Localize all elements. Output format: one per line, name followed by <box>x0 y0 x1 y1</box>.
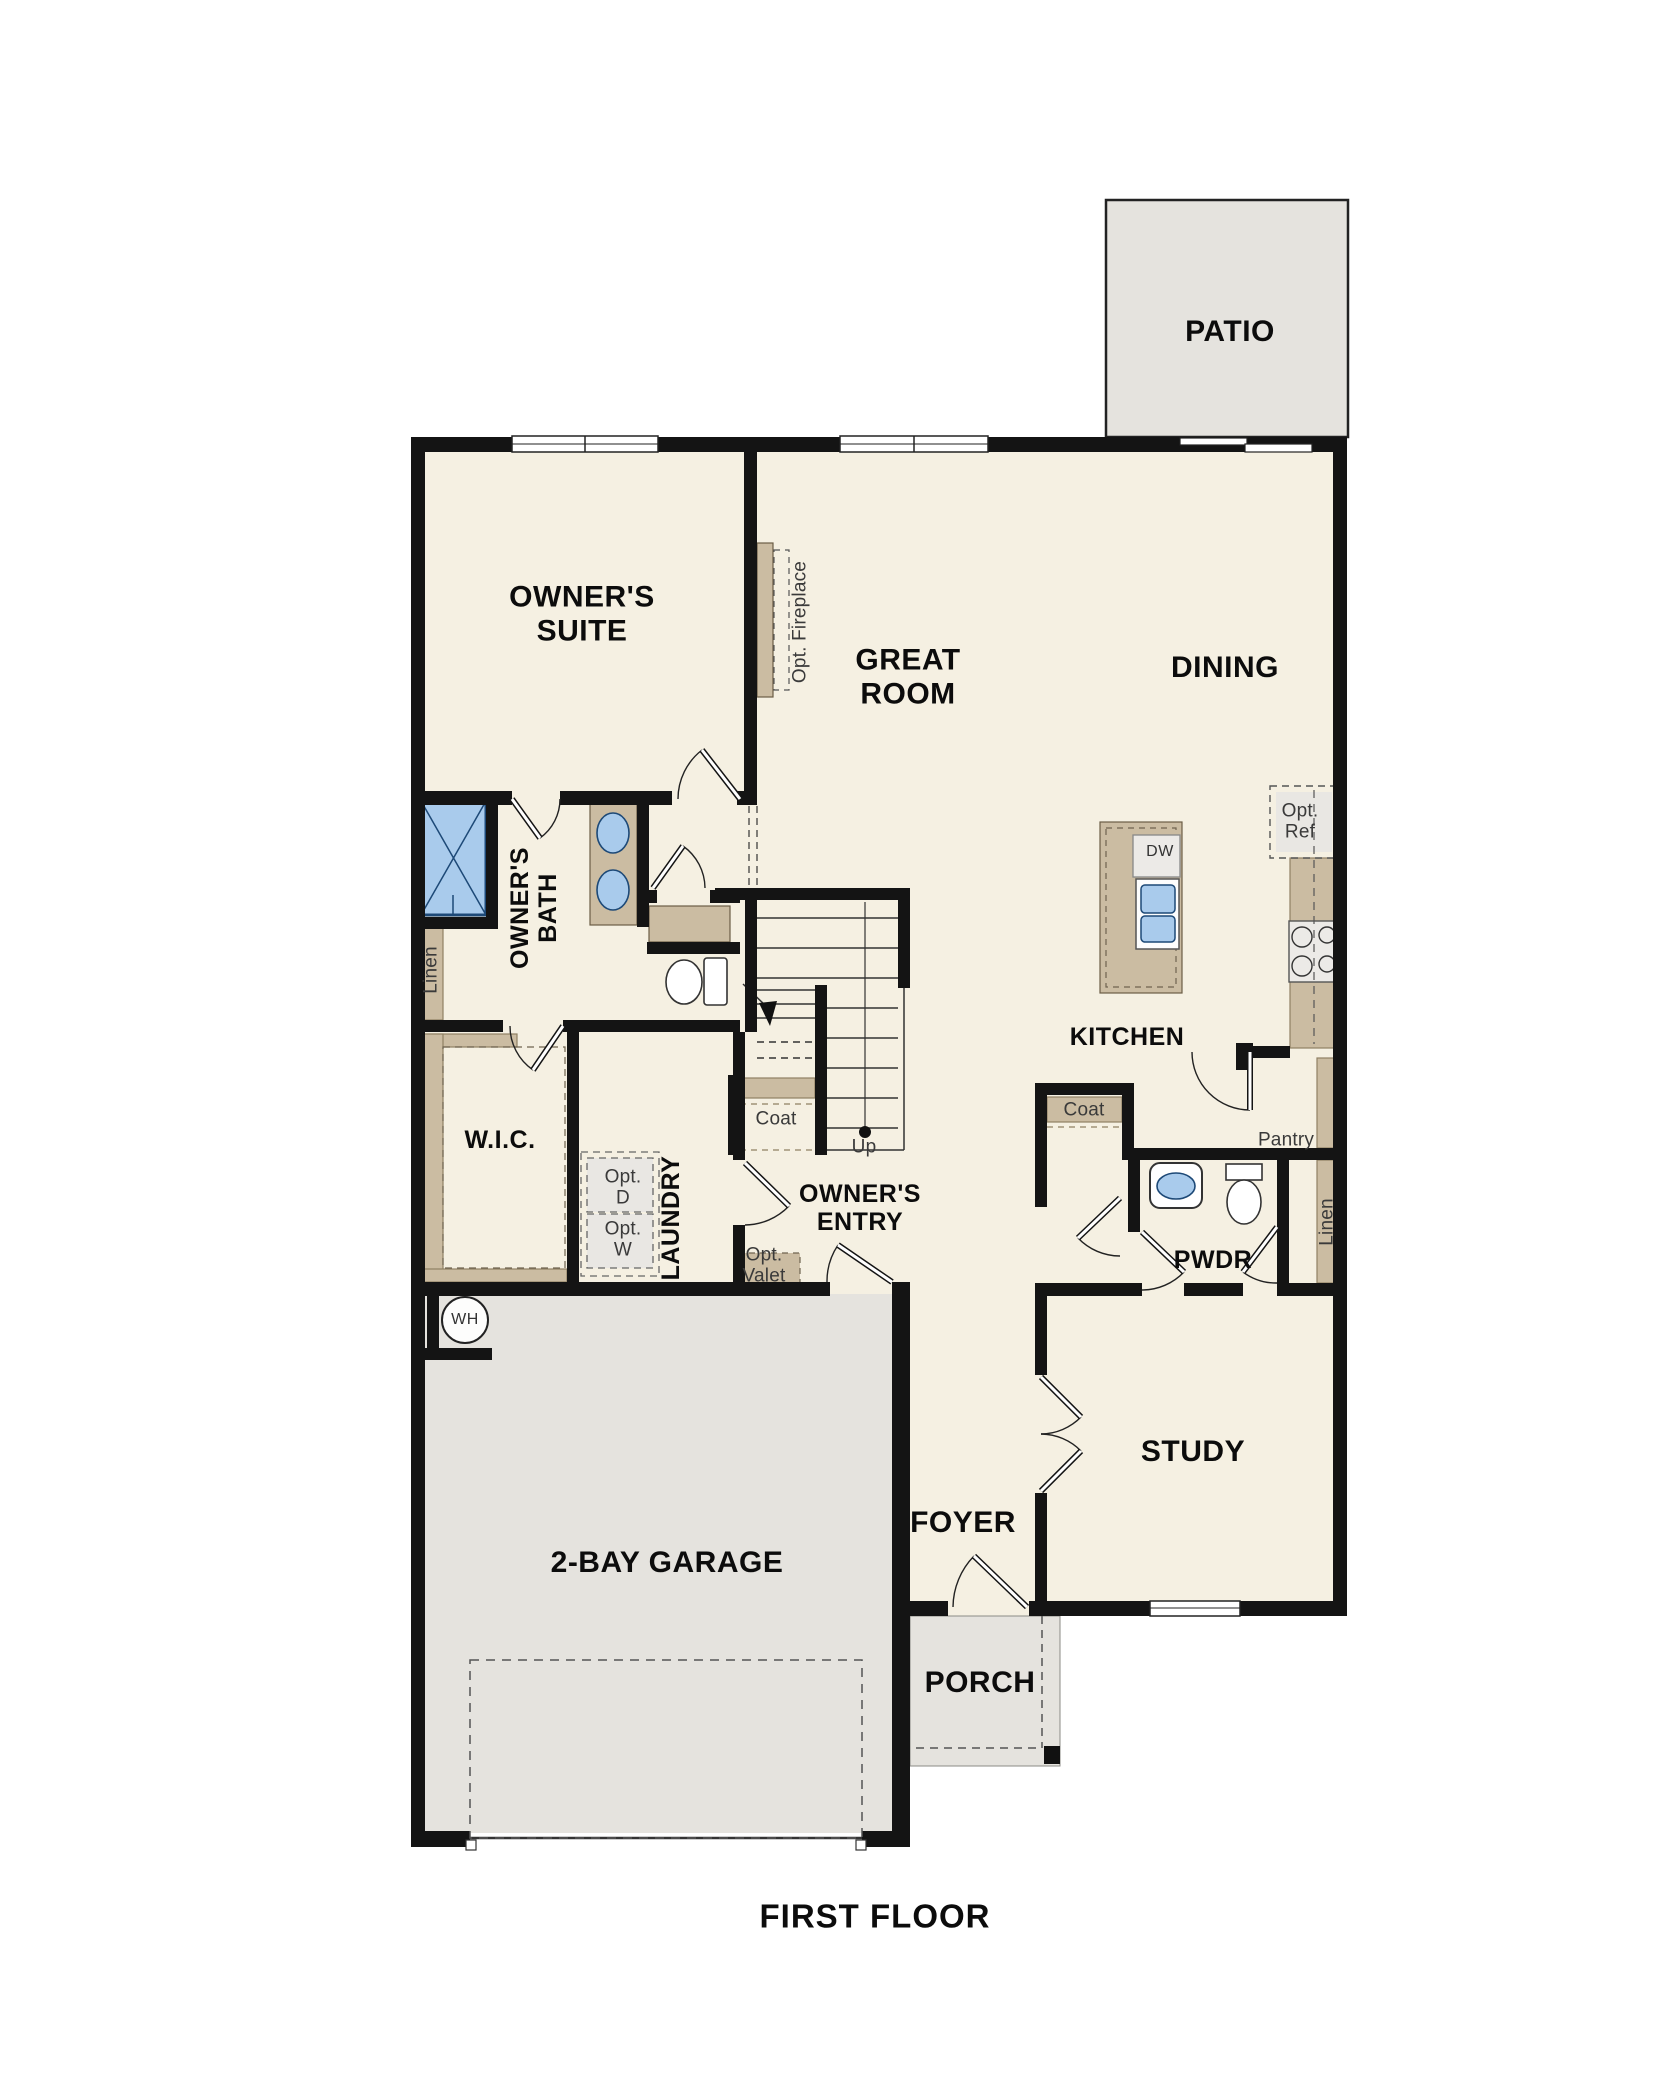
floorplan-first-floor: PATIO OWNER'S SUITE GREAT ROOM DINING Op… <box>0 0 1659 2075</box>
room-label-owners-entry: OWNER'S ENTRY <box>799 1180 921 1236</box>
room-label-patio: PATIO <box>1185 315 1275 349</box>
label-opt-valet: Opt. Valet <box>743 1245 786 1288</box>
label-pantry: Pantry <box>1258 1129 1314 1150</box>
label-linen-hall: Linen <box>1316 1198 1337 1246</box>
toilet-tank-pwdr <box>1226 1164 1262 1180</box>
patio-slider-panel-1 <box>1180 438 1247 445</box>
wic-shelf-bottom <box>423 1269 567 1282</box>
room-label-kitchen: KITCHEN <box>1070 1023 1185 1051</box>
room-label-foyer: FOYER <box>910 1506 1016 1540</box>
wic-shelf-left <box>423 1034 443 1282</box>
room-label-pwdr: PWDR <box>1174 1246 1252 1274</box>
coat-shelf-stairs <box>740 1078 815 1098</box>
label-opt-washer: Opt. W <box>605 1219 642 1262</box>
plan-caption: FIRST FLOOR <box>760 1899 991 1936</box>
patio-slider-panel-2 <box>1245 444 1312 452</box>
room-label-wic: W.I.C. <box>464 1126 535 1154</box>
label-opt-fireplace: Opt. Fireplace <box>789 561 810 683</box>
toilet-bowl-pwdr <box>1227 1180 1261 1224</box>
floorplan-drawing <box>0 0 1659 2075</box>
room-label-garage: 2-BAY GARAGE <box>551 1546 784 1580</box>
room-label-owners-bath: OWNER'S BATH <box>506 847 562 969</box>
toilet-bowl-bath <box>666 960 702 1004</box>
label-opt-ref: Opt. Ref <box>1282 801 1319 844</box>
porch-post <box>1044 1746 1060 1764</box>
room-label-study: STUDY <box>1141 1435 1245 1469</box>
room-label-owners-suite: OWNER'S SUITE <box>509 580 655 647</box>
bath-bench <box>649 906 730 942</box>
label-coat-stairs: Coat <box>756 1108 797 1129</box>
fireplace <box>757 543 773 697</box>
toilet-tank-bath <box>704 958 727 1005</box>
room-label-porch: PORCH <box>925 1666 1036 1700</box>
label-linen-bath: Linen <box>420 946 441 994</box>
vanity-sink-1 <box>597 813 629 853</box>
label-opt-dryer: Opt. D <box>605 1167 642 1210</box>
label-water-heater: WH <box>451 1311 479 1329</box>
label-stairs-up: Up <box>852 1136 877 1157</box>
label-coat-kitchen: Coat <box>1064 1099 1105 1120</box>
vanity-sink-2 <box>597 870 629 910</box>
room-label-dining: DINING <box>1171 651 1279 685</box>
room-label-great-room: GREAT ROOM <box>855 643 960 710</box>
room-label-laundry: LAUNDRY <box>657 1156 685 1281</box>
label-dishwasher: DW <box>1146 843 1174 861</box>
